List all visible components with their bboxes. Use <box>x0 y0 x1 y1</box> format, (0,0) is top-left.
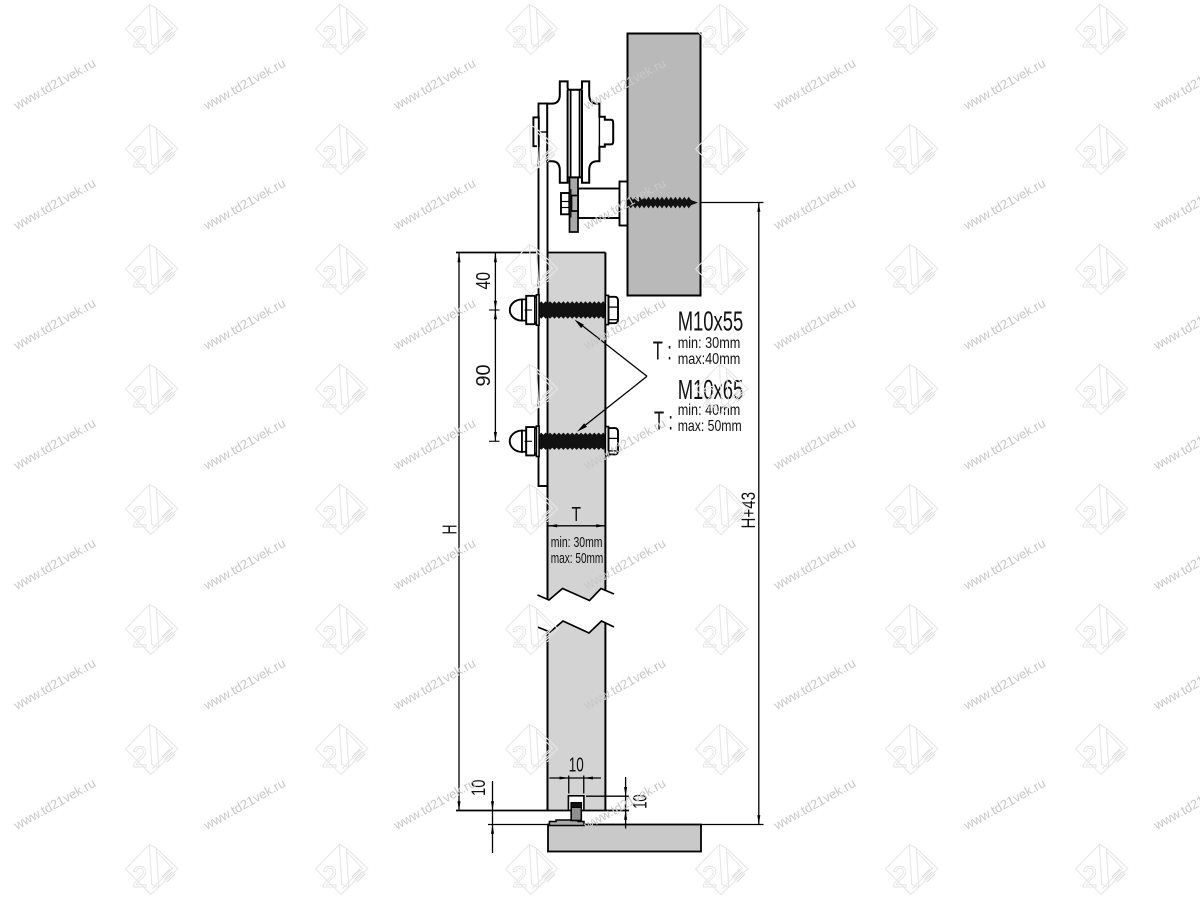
svg-text:H+43: H+43 <box>739 492 760 529</box>
svg-text:min: 30mm: min: 30mm <box>678 335 741 352</box>
svg-text:min: 30mm: min: 30mm <box>551 534 603 551</box>
svg-text:T :: T : <box>653 335 672 365</box>
svg-text:40: 40 <box>473 272 495 290</box>
svg-text:max:40mm: max:40mm <box>678 351 741 368</box>
svg-text:10: 10 <box>569 755 584 777</box>
svg-text:T: T <box>572 504 582 526</box>
svg-text:max: 50mm: max: 50mm <box>678 418 742 435</box>
svg-text:H: H <box>440 525 462 535</box>
svg-text:M10x55: M10x55 <box>678 305 744 336</box>
svg-text:max: 50mm: max: 50mm <box>551 550 604 567</box>
svg-text:90: 90 <box>473 365 495 387</box>
